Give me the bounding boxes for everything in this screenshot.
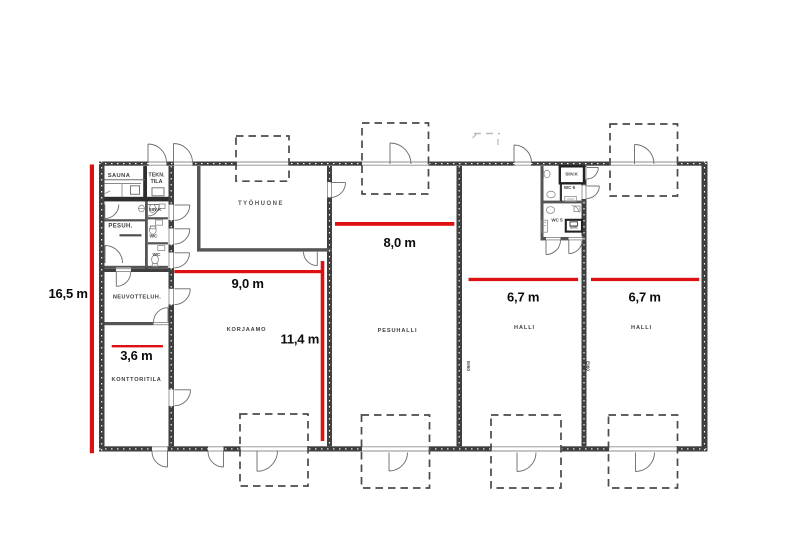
svg-text:6,7 m: 6,7 m bbox=[507, 289, 539, 304]
svg-text:EI60: EI60 bbox=[584, 361, 590, 371]
svg-text:WC 6: WC 6 bbox=[564, 185, 576, 190]
svg-text:WC: WC bbox=[153, 252, 162, 258]
svg-text:SIIV.K: SIIV.K bbox=[149, 207, 163, 212]
svg-text:NEUVOTTELUH.: NEUVOTTELUH. bbox=[113, 294, 161, 300]
svg-text:WC 5: WC 5 bbox=[551, 218, 563, 223]
svg-text:8,0 m: 8,0 m bbox=[384, 235, 416, 250]
svg-text:3,6 m: 3,6 m bbox=[120, 348, 152, 363]
svg-text:TILA: TILA bbox=[151, 179, 163, 185]
svg-text:TEKN.: TEKN. bbox=[148, 173, 165, 179]
svg-text:WC: WC bbox=[150, 234, 159, 240]
svg-text:16,5 m: 16,5 m bbox=[49, 286, 88, 301]
svg-text:SIIV.: SIIV. bbox=[570, 224, 578, 229]
svg-text:PESUH.: PESUH. bbox=[108, 224, 132, 230]
svg-text:SAUNA: SAUNA bbox=[108, 173, 131, 179]
svg-text:SIIV.K: SIIV.K bbox=[565, 171, 578, 176]
svg-text:6,7 m: 6,7 m bbox=[629, 289, 661, 304]
svg-text:11,4 m: 11,4 m bbox=[281, 331, 320, 346]
svg-text:KONTTORITILA: KONTTORITILA bbox=[112, 377, 162, 383]
svg-text:EI60: EI60 bbox=[465, 361, 471, 371]
svg-text:HALLI: HALLI bbox=[631, 325, 652, 331]
svg-text:9,0 m: 9,0 m bbox=[232, 276, 264, 291]
svg-text:KORJAAMO: KORJAAMO bbox=[227, 327, 267, 333]
svg-text:TYÖHUONE: TYÖHUONE bbox=[238, 200, 284, 207]
svg-text:HALLI: HALLI bbox=[514, 325, 535, 331]
svg-text:PESUHALLI: PESUHALLI bbox=[378, 328, 418, 334]
